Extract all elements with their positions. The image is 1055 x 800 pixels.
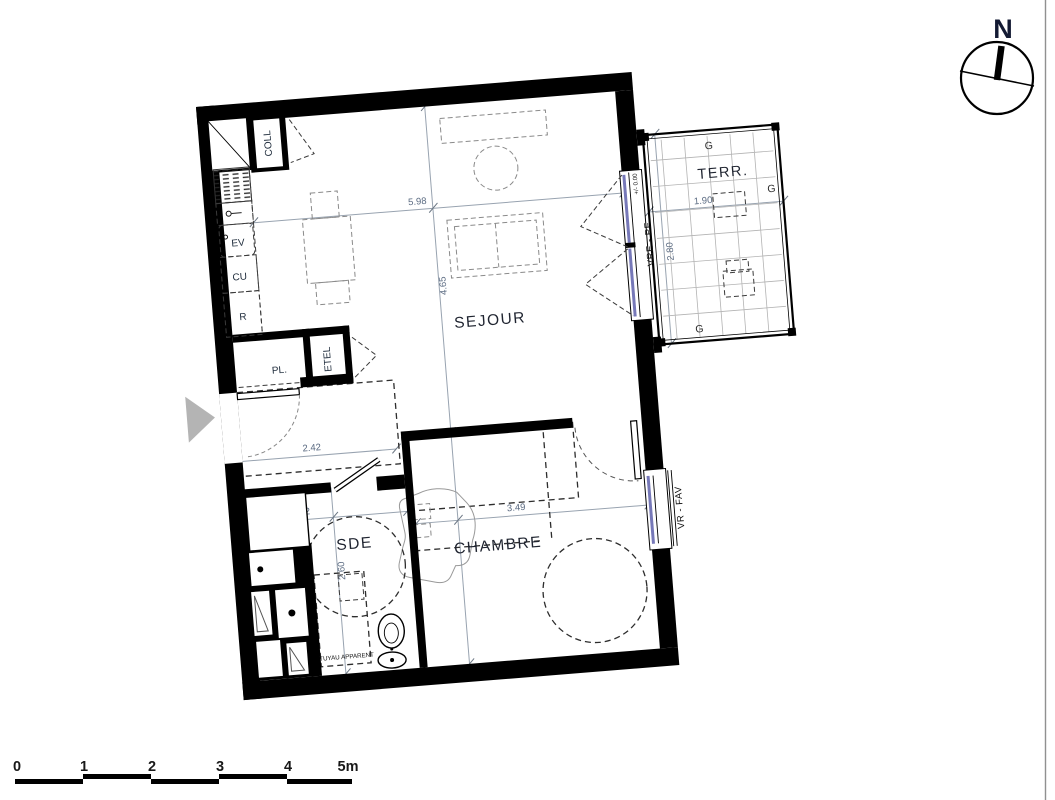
room-label-sde: SDE [336, 534, 374, 554]
washbasin-counter [245, 492, 309, 551]
terrace [636, 118, 797, 353]
scale-label-4: 4 [284, 759, 292, 775]
shaft-coll [207, 112, 315, 176]
scale-label-1: 1 [80, 759, 88, 775]
dim-sejour-height: 4.65 [437, 276, 449, 295]
label-etel: ETEL [322, 346, 335, 372]
closet-front-line [239, 383, 301, 388]
floor-plan-canvas: SEJOUR CHAMBRE SDE TERR. COLL PL. ETEL E… [0, 0, 1055, 800]
dim-chambre-width: 3.49 [507, 502, 526, 514]
dim-terrace-height: 2.80 [664, 242, 676, 261]
dim-sejour-width: 5.98 [408, 196, 427, 208]
compass-needle-icon [997, 46, 1002, 80]
door-leaf [631, 421, 642, 479]
bed-outline [393, 486, 480, 586]
label-coll: COLL [262, 129, 275, 156]
etel-door-swing [352, 335, 378, 377]
scale-bar: 0 1 2 3 4 5m [13, 759, 359, 784]
room-label-chambre: CHAMBRE [454, 534, 543, 558]
terrace-g-marker: G [704, 140, 713, 153]
label-cu: CU [232, 271, 247, 283]
chambre-door [575, 421, 642, 486]
room-label-sejour: SEJOUR [454, 309, 527, 332]
scale-label-3: 3 [216, 759, 224, 775]
label-pl: PL. [271, 365, 287, 377]
entrance-door [219, 388, 304, 464]
window-vr-fav [644, 468, 678, 550]
window-vre-pf [577, 169, 654, 324]
window-label-vr-fav: VR - FAV [673, 485, 687, 529]
entrance-arrow-icon [185, 395, 217, 443]
scale-label-2: 2 [148, 759, 156, 775]
label-r: R [239, 312, 247, 324]
dim-hall-width: 2.42 [302, 442, 321, 454]
dim-sde-height: 2.60 [336, 561, 348, 580]
toilet-icon [377, 614, 406, 669]
sde-door [333, 459, 381, 490]
apartment-plan: SEJOUR CHAMBRE SDE TERR. COLL PL. ETEL E… [162, 60, 825, 703]
compass-north-label: N [993, 14, 1013, 44]
north-compass: N [960, 14, 1034, 114]
window-label-vre-pf: VRE - PF [643, 222, 658, 267]
label-ev: EV [231, 238, 246, 250]
terrace-g-marker: G [695, 323, 704, 336]
scale-label-5m: 5m [338, 759, 359, 775]
terrace-g-marker: G [767, 183, 776, 196]
scale-label-0: 0 [13, 759, 21, 775]
label-tuyau-apparent: TUYAU APPARENT [319, 651, 374, 662]
room-label-terrasse: TERR. [697, 163, 749, 183]
cooktop-icon [213, 167, 252, 204]
dim-terrace-width: 1.90 [694, 195, 713, 207]
